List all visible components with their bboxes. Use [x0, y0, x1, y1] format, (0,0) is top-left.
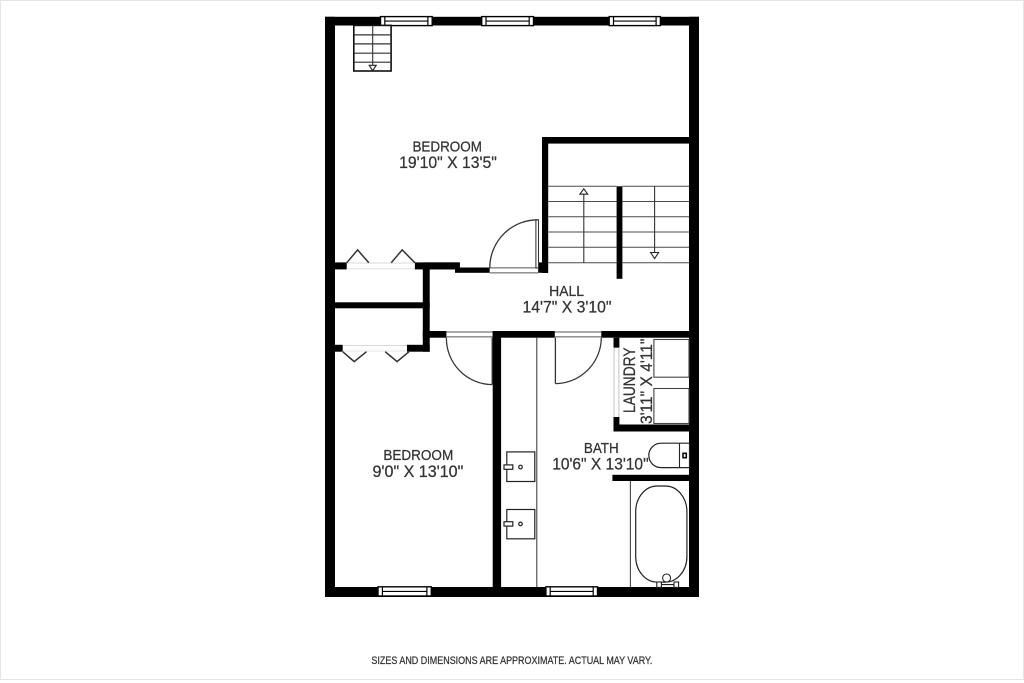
- svg-text:19'10" X 13'5": 19'10" X 13'5": [399, 154, 497, 172]
- svg-text:BATH: BATH: [584, 441, 619, 457]
- svg-text:9'0" X 13'10": 9'0" X 13'10": [373, 463, 464, 481]
- svg-text:10'6" X 13'10": 10'6" X 13'10": [552, 456, 649, 474]
- svg-text:3'11" X 4'11": 3'11" X 4'11": [638, 338, 656, 424]
- svg-text:SIZES AND DIMENSIONS ARE APPRO: SIZES AND DIMENSIONS ARE APPROXIMATE. AC…: [371, 655, 652, 667]
- svg-text:BEDROOM: BEDROOM: [383, 448, 453, 464]
- svg-text:LAUNDRY: LAUNDRY: [621, 347, 639, 413]
- svg-text:14'7" X 3'10": 14'7" X 3'10": [523, 298, 612, 316]
